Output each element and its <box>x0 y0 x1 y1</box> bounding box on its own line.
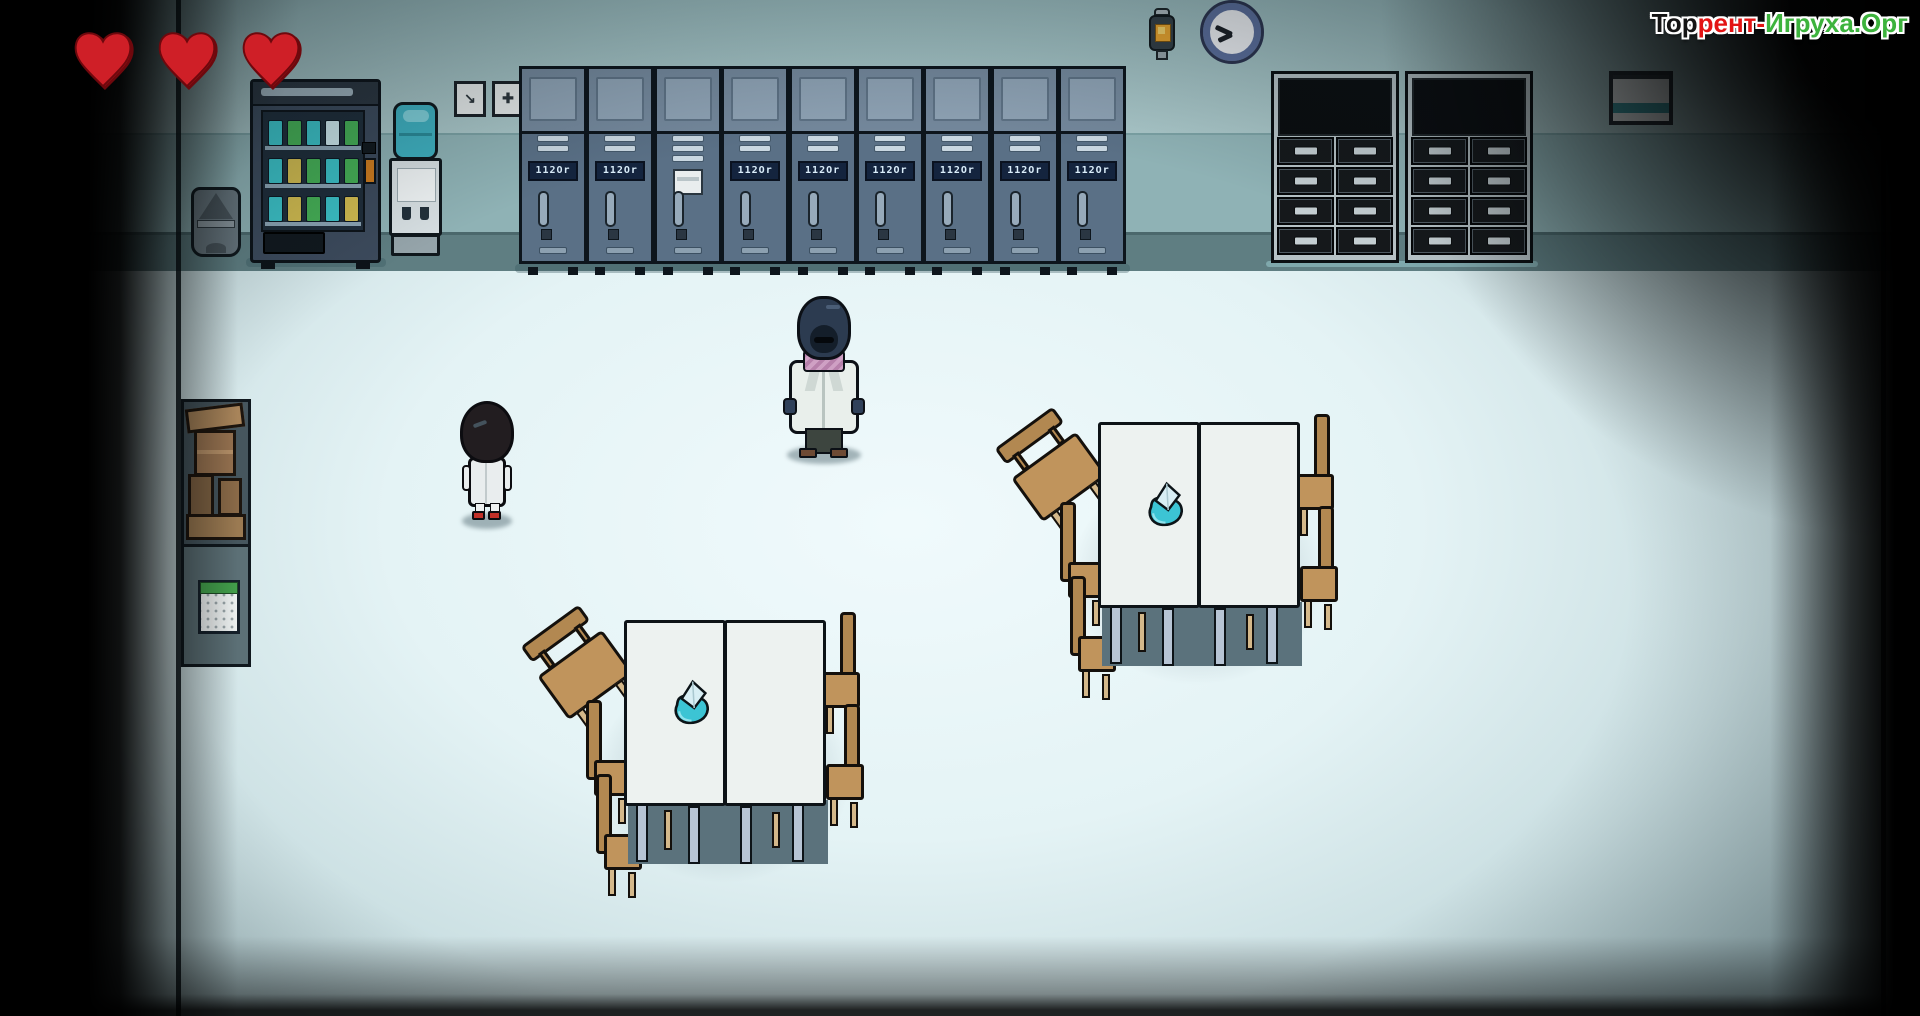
cabinet-drawer[interactable] <box>1337 228 1392 254</box>
locker-name-plate: 112Or <box>730 161 780 181</box>
drink-can <box>306 158 321 184</box>
locker-top-panel <box>792 69 854 134</box>
locker-leg <box>1000 267 1010 275</box>
wall-clock <box>1203 3 1261 61</box>
drawer-handle-icon <box>1487 207 1511 216</box>
vending-leg <box>356 262 370 269</box>
locker-vent <box>741 247 769 254</box>
drawer-handle-icon <box>1294 207 1318 216</box>
locker-top-inset <box>596 77 644 121</box>
cabinet-drawer[interactable] <box>1278 228 1333 254</box>
box-tape <box>197 450 233 454</box>
locker-top-panel <box>724 69 786 134</box>
chair-leg <box>772 812 780 848</box>
vending-machine[interactable] <box>250 79 381 263</box>
drink-can <box>344 158 359 184</box>
cooler-body <box>389 158 442 236</box>
cooler-base <box>391 234 440 256</box>
locker-handle[interactable] <box>740 191 751 227</box>
locker-leg <box>905 267 915 275</box>
whiteboard-stripe <box>1613 103 1669 113</box>
doctor-mouth <box>814 337 834 343</box>
locker-padlock-icon <box>1013 229 1024 240</box>
cabinet-drawer[interactable] <box>1412 138 1467 164</box>
cabinet-drawer[interactable] <box>1337 138 1392 164</box>
lamp-glow-bright <box>1158 27 1165 34</box>
calendar-header <box>200 582 238 594</box>
locker-padlock-icon <box>676 229 687 240</box>
vending-glass <box>261 110 365 232</box>
water-bottle <box>393 102 438 160</box>
cooler-tap-cold[interactable] <box>402 207 411 220</box>
whiteboard-rail <box>1613 75 1669 79</box>
locker-vent <box>537 145 569 152</box>
cabinet-drawer[interactable] <box>1412 228 1467 254</box>
drink-can <box>287 120 302 146</box>
locker-leg <box>972 267 982 275</box>
chair-leg <box>1138 612 1146 652</box>
locker-vent <box>672 145 704 152</box>
locker-5[interactable]: 112Or <box>789 66 857 264</box>
locker-vent <box>606 247 634 254</box>
locker-leg <box>703 267 713 275</box>
locker-leg <box>932 267 942 275</box>
locker-top-panel <box>657 69 719 134</box>
locker-padlock-icon <box>1080 229 1091 240</box>
cardboard-box <box>194 430 236 476</box>
locker-8[interactable]: 112Or <box>991 66 1059 264</box>
drawer-handle-icon <box>1294 147 1318 156</box>
locker-top-inset <box>799 77 847 121</box>
heart-icon <box>70 24 136 94</box>
cabinet-top-panel <box>1412 78 1526 136</box>
drink-can <box>325 196 340 222</box>
room-right-edge <box>1881 0 1886 1016</box>
water-bottle-highlight <box>403 110 429 122</box>
locker-handle[interactable] <box>538 191 549 227</box>
locker-padlock-icon <box>608 229 619 240</box>
shelf-ledge <box>265 184 361 188</box>
drink-can <box>268 120 283 146</box>
locker-top-panel <box>926 69 988 134</box>
child-hair <box>460 401 514 463</box>
heart-icon <box>154 24 220 94</box>
drawer-grid <box>1412 138 1526 254</box>
trash-foot <box>206 243 226 253</box>
table-right <box>724 620 826 806</box>
locker-vent <box>1009 135 1041 142</box>
cabinet-drawer[interactable] <box>1412 198 1467 224</box>
chair-leg <box>664 810 672 850</box>
cabinet-top-panel <box>1278 78 1392 136</box>
drawer-handle-icon <box>1294 177 1318 186</box>
child-arm <box>462 465 471 491</box>
locker-padlock-icon <box>541 229 552 240</box>
locker-padlock-icon <box>945 229 956 240</box>
drawer-handle-icon <box>1353 147 1377 156</box>
locker-vent <box>1076 135 1108 142</box>
drawer-handle-icon <box>1353 177 1377 186</box>
locker-handle[interactable] <box>808 191 819 227</box>
locker-vent <box>672 155 704 162</box>
drink-can <box>325 120 340 146</box>
drawer-handle-icon <box>1428 147 1452 156</box>
drawer-handle-icon <box>1428 207 1452 216</box>
water-cooler[interactable] <box>389 102 442 258</box>
child-character[interactable] <box>458 401 516 531</box>
teal-cap-item[interactable] <box>1139 475 1190 533</box>
locker-vent <box>539 247 567 254</box>
cabinet-drawer[interactable] <box>1471 138 1526 164</box>
cooler-tap-hot[interactable] <box>420 207 429 220</box>
locker-2[interactable]: 112Or <box>586 66 654 264</box>
locker-vent <box>941 145 973 152</box>
locker-leg <box>865 267 875 275</box>
table-right <box>1198 422 1300 608</box>
locker-handle[interactable] <box>605 191 616 227</box>
locker-leg <box>635 267 645 275</box>
table-leg <box>636 804 648 862</box>
locker-top-inset <box>1001 77 1049 121</box>
doctor-face <box>810 325 838 353</box>
locker-vent <box>1011 247 1039 254</box>
trash-can[interactable] <box>191 187 241 257</box>
locker-3[interactable] <box>654 66 722 264</box>
locker-handle[interactable] <box>1010 191 1021 227</box>
locker-name-plate: 112Or <box>865 161 915 181</box>
locker-vent <box>943 247 971 254</box>
calendar[interactable] <box>198 580 240 634</box>
locker-top-panel <box>994 69 1056 134</box>
watermark: Торрент-Игруха.Орг <box>1652 8 1908 39</box>
locker-handle[interactable] <box>1077 191 1088 227</box>
cabinet-drawer[interactable] <box>1471 228 1526 254</box>
table-leg <box>1214 608 1226 666</box>
drawer-grid <box>1278 138 1392 254</box>
wall-sign-left: ↘ <box>454 81 486 117</box>
teal-cap-item[interactable] <box>665 673 716 731</box>
whiteboard[interactable] <box>1609 71 1673 125</box>
cross-icon: ✚ <box>502 90 514 106</box>
drink-can <box>287 158 302 184</box>
health-hearts <box>70 24 330 102</box>
locker-1[interactable]: 112Or <box>519 66 587 264</box>
cardboard-box <box>185 403 245 434</box>
locker-vent <box>876 247 904 254</box>
shelf-ledge <box>265 146 361 150</box>
drawer-handle-icon <box>1353 237 1377 246</box>
locker-top-inset <box>529 77 577 121</box>
doctor-shoe <box>830 448 848 458</box>
drink-can <box>268 158 283 184</box>
locker-top-panel <box>589 69 651 134</box>
locker-6[interactable]: 112Or <box>856 66 924 264</box>
locker-name-plate: 112Or <box>1000 161 1050 181</box>
locker-4[interactable]: 112Or <box>721 66 789 264</box>
locker-name-plate: 112Or <box>932 161 982 181</box>
locker-9[interactable]: 112Or <box>1058 66 1126 264</box>
cabinet-drawer[interactable] <box>1412 168 1467 194</box>
locker-vent <box>604 145 636 152</box>
cooler-panel <box>397 168 436 202</box>
table-leg <box>1162 608 1174 666</box>
vending-shelf <box>266 192 360 226</box>
locker-leg <box>1067 267 1077 275</box>
locker-leg <box>798 267 808 275</box>
locker-vent <box>739 145 771 152</box>
locker-handle[interactable] <box>875 191 886 227</box>
clock-hand-hour <box>1217 32 1233 43</box>
locker-top-panel <box>1061 69 1123 134</box>
drink-can <box>325 158 340 184</box>
doctor-character[interactable] <box>783 296 865 466</box>
lamp-body <box>1149 15 1175 51</box>
doctor-shoe <box>799 448 817 458</box>
locker-leg <box>528 267 538 275</box>
cabinet-drawer[interactable] <box>1278 198 1333 224</box>
locker-vent <box>807 135 839 142</box>
locker-top-inset <box>664 77 712 121</box>
table-leg <box>1266 606 1278 664</box>
watermark-seg-3: Игруха.Орг <box>1765 8 1908 38</box>
chair <box>826 704 878 844</box>
cabinet-drawer[interactable] <box>1471 168 1526 194</box>
cardboard-box <box>186 514 246 540</box>
locker-vent <box>809 247 837 254</box>
storage-locker[interactable] <box>181 399 251 667</box>
trash-lid-icon <box>199 193 233 219</box>
lockers-shadow <box>515 264 1130 273</box>
gown-seam <box>485 462 487 504</box>
locker-leg <box>568 267 578 275</box>
drink-can <box>306 196 321 222</box>
child-gown <box>468 457 506 507</box>
locker-leg <box>595 267 605 275</box>
locker-padlock-icon <box>878 229 889 240</box>
coat-seam <box>822 367 825 429</box>
lamp-glow-icon <box>1155 24 1171 42</box>
vending-display <box>362 142 376 154</box>
trash-band <box>197 220 235 228</box>
drawer-handle-icon <box>1353 207 1377 216</box>
child-shadow <box>462 513 512 529</box>
locker-leg <box>663 267 673 275</box>
drawer-handle-icon <box>1428 177 1452 186</box>
locker-name-plate: 112Or <box>528 161 578 181</box>
chair <box>1300 506 1352 646</box>
table-group-2 <box>540 604 880 904</box>
drink-can <box>306 120 321 146</box>
table-group-1 <box>1014 406 1354 706</box>
drink-can <box>268 196 283 222</box>
table-leg <box>792 804 804 862</box>
child-shoe <box>472 511 485 520</box>
child-shoe <box>488 511 501 520</box>
drawer-handle-icon <box>1294 237 1318 246</box>
arrow-down-right-icon: ↘ <box>464 90 476 106</box>
storage-open-shelf <box>184 402 248 547</box>
locker-leg <box>730 267 740 275</box>
game-screen: ↘ ✚ 112Or 112Or 112Or 1 <box>0 0 1920 1016</box>
locker-name-plate: 112Or <box>1067 161 1117 181</box>
locker-top-inset <box>731 77 779 121</box>
drawer-handle-icon <box>1487 147 1511 156</box>
locker-vent <box>941 135 973 142</box>
locker-leg <box>838 267 848 275</box>
locker-vent <box>604 135 636 142</box>
hair-highlight <box>473 420 488 429</box>
doctor-head <box>797 296 851 360</box>
vending-shelf <box>266 154 360 188</box>
locker-vent <box>807 145 839 152</box>
locker-top-panel <box>859 69 921 134</box>
chair-leg <box>1246 614 1254 650</box>
locker-name-plate: 112Or <box>595 161 645 181</box>
floor <box>0 271 1920 1016</box>
locker-top-inset <box>1068 77 1116 121</box>
locker-vent <box>874 135 906 142</box>
locker-leg <box>1107 267 1117 275</box>
water-bottle-line <box>399 133 432 136</box>
table-leg <box>1110 606 1122 664</box>
locker-leg <box>1040 267 1050 275</box>
table-leg <box>688 806 700 864</box>
drawer-handle-icon <box>1428 237 1452 246</box>
locker-vent <box>1078 247 1106 254</box>
locker-leg <box>770 267 780 275</box>
locker-vent <box>739 135 771 142</box>
cabinet-drawer[interactable] <box>1278 168 1333 194</box>
watermark-seg-2: рент- <box>1698 8 1765 38</box>
locker-padlock-icon <box>743 229 754 240</box>
shelf-ledge <box>265 222 361 226</box>
table-leg <box>740 806 752 864</box>
locker-vent <box>672 135 704 142</box>
filing-cabinet-2[interactable] <box>1405 71 1533 263</box>
locker-name-plate: 112Or <box>798 161 848 181</box>
cabinet-drawer[interactable] <box>1337 198 1392 224</box>
locker-top-inset <box>933 77 981 121</box>
locker-top-inset <box>866 77 914 121</box>
wall-lamp <box>1146 8 1178 64</box>
vending-leg <box>261 262 275 269</box>
locker-vent <box>537 135 569 142</box>
cabinet-drawer[interactable] <box>1278 138 1333 164</box>
drawer-handle-icon <box>1487 177 1511 186</box>
locker-vent <box>674 247 702 254</box>
locker-handle[interactable] <box>942 191 953 227</box>
locker-vent <box>1009 145 1041 152</box>
vending-shelf <box>266 116 360 150</box>
cardboard-box <box>218 478 242 516</box>
drink-can <box>344 120 359 146</box>
child-arm <box>503 465 512 491</box>
cabinet-drawer[interactable] <box>1471 198 1526 224</box>
head-highlight <box>826 305 840 309</box>
doctor-hand <box>783 398 797 415</box>
vending-dispenser-slot[interactable] <box>263 232 325 254</box>
heart-icon <box>238 24 304 94</box>
cardboard-box <box>188 474 214 518</box>
vending-coin-slot[interactable] <box>364 158 376 184</box>
doctor-hand <box>851 398 865 415</box>
drink-can <box>287 196 302 222</box>
drawer-handle-icon <box>1487 237 1511 246</box>
lamp-base <box>1156 50 1168 60</box>
locker-vent <box>1076 145 1108 152</box>
locker-vent <box>874 145 906 152</box>
filing-cabinet-1[interactable] <box>1271 71 1399 263</box>
watermark-seg-1: Тор <box>1652 8 1698 38</box>
cabinet-drawer[interactable] <box>1337 168 1392 194</box>
locker-padlock-icon <box>811 229 822 240</box>
locker-top-panel <box>522 69 584 134</box>
locker-handle[interactable] <box>673 191 684 227</box>
locker-7[interactable]: 112Or <box>923 66 991 264</box>
drink-can <box>344 196 359 222</box>
